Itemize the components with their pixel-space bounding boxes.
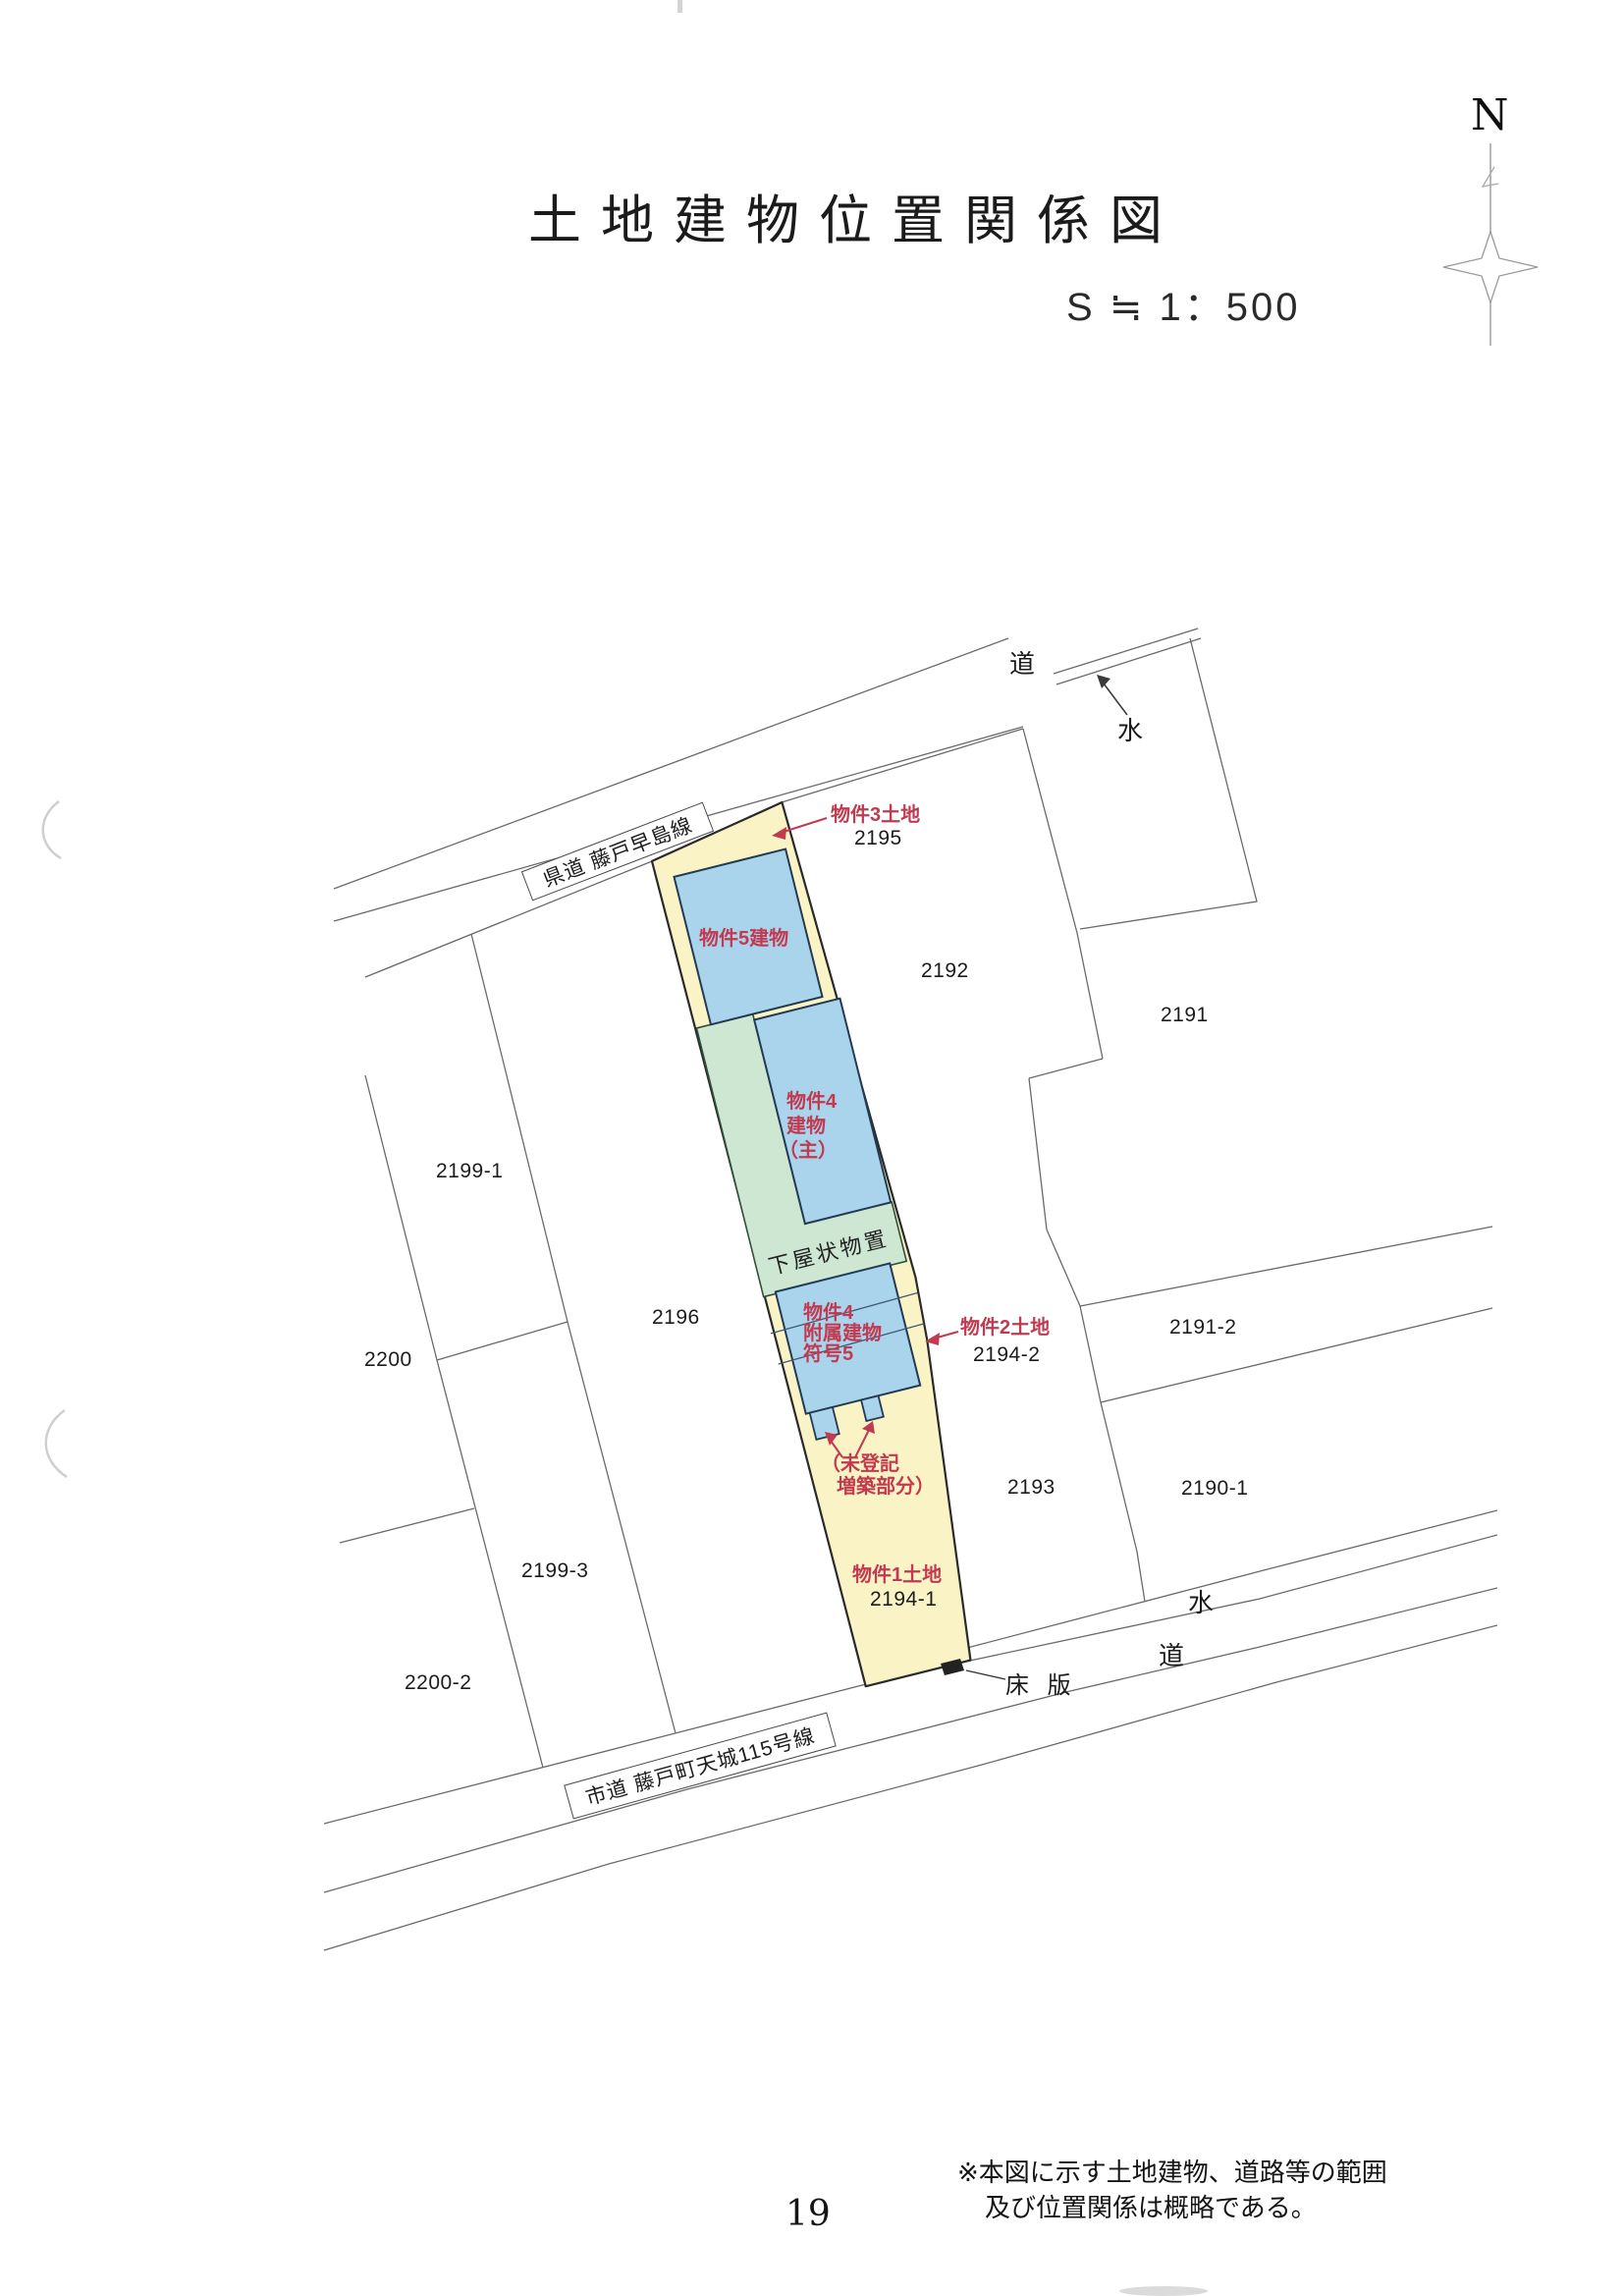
scan-artifact-tick	[677, 0, 682, 13]
annotation-property5-building: 物件5建物	[699, 927, 788, 952]
annotation-property4-annex: 物件4 附属建物 符号5	[803, 1303, 882, 1365]
water-char-top: 水	[1117, 711, 1143, 747]
water-channel-bottom-line	[967, 1510, 1497, 1648]
scan-artifact-arc	[46, 1410, 67, 1477]
annotation-line: （未登記	[821, 1453, 935, 1476]
boundary-2199-1-2199-3	[437, 1322, 568, 1360]
parcel-2194-1: 2194-1	[870, 1588, 937, 1612]
parcel-2190-1: 2190-1	[1181, 1477, 1248, 1501]
water-arrow	[1097, 675, 1127, 715]
scan-artifact-arc	[43, 801, 61, 858]
annotation-line: 物件4	[786, 1090, 838, 1115]
page-title: 土地建物位置関係図	[528, 177, 1182, 254]
annotation-line: （主）	[779, 1139, 838, 1164]
parcel-2200: 2200	[364, 1348, 412, 1372]
parcel-2199-1: 2199-1	[436, 1160, 503, 1183]
annotation-line: 建物	[786, 1115, 838, 1139]
boundary-2196-west	[471, 934, 676, 1733]
page-number: 19	[785, 2194, 831, 2234]
parcel-2194-2: 2194-2	[973, 1343, 1040, 1367]
annotation-property1-land: 物件1土地	[852, 1563, 942, 1588]
parcel-2191: 2191	[1161, 1004, 1209, 1027]
annotation-property4-main: 物件4 建物 （主）	[786, 1090, 838, 1164]
parcel-2199-3: 2199-3	[521, 1559, 588, 1583]
boundary-2191-2-2190-1	[1101, 1308, 1492, 1402]
road-char-bottom: 道	[1159, 1636, 1184, 1672]
water-char-bottom: 水	[1188, 1583, 1214, 1619]
annotation-line: 符号5	[803, 1344, 882, 1365]
parcel-2195: 2195	[854, 827, 902, 850]
scale-text: S ≒ 1：500	[1066, 275, 1300, 332]
parcel-2193: 2193	[1007, 1476, 1056, 1500]
parcel-2196: 2196	[652, 1306, 700, 1330]
footer-note-line1: ※本図に示す土地建物、道路等の範囲	[957, 2155, 1387, 2190]
parcel-2192: 2192	[921, 959, 969, 983]
parcel-2191-2: 2191-2	[1169, 1316, 1236, 1339]
floor-slab-label: 床 版	[1005, 1666, 1077, 1700]
boundary-2191-2191-2	[1080, 1227, 1492, 1306]
water-channel-line	[1054, 629, 1198, 674]
boundary-2200-2200-2	[340, 1508, 474, 1543]
road-char-top: 道	[1009, 644, 1035, 681]
scan-artifact-smudge	[1119, 2286, 1208, 2296]
compass-rose	[1443, 143, 1538, 346]
annotation-line: 附属建物	[803, 1324, 882, 1344]
road-south-edge	[782, 729, 1023, 802]
annotation-property3-land: 物件3土地	[831, 803, 920, 828]
footer-note-line2: 及び位置関係は概略である。	[985, 2190, 1387, 2225]
document-page: 土地建物位置関係図 S ≒ 1：500 N 県道 藤戸早島線 市道 藤戸町天城1…	[0, 0, 1624, 2296]
annotation-unregistered: （未登記 増築部分）	[821, 1453, 935, 1499]
road-south-edge	[365, 861, 652, 977]
annotation-property2-land: 物件2土地	[960, 1316, 1050, 1340]
parcel-2200-2: 2200-2	[405, 1671, 471, 1695]
compass-star-icon	[1443, 232, 1538, 302]
boundary-2192-west	[1023, 729, 1103, 1059]
water-channel-line	[1056, 638, 1201, 684]
footer-note: ※本図に示す土地建物、道路等の範囲 及び位置関係は概略である。	[957, 2155, 1387, 2225]
boundary-2192-south	[1029, 1059, 1103, 1078]
floor-slab-leader	[966, 1670, 1005, 1679]
annotation-line: 物件4	[803, 1303, 882, 1324]
annotation-line: 増築部分）	[837, 1476, 935, 1499]
north-label: N	[1471, 90, 1509, 140]
